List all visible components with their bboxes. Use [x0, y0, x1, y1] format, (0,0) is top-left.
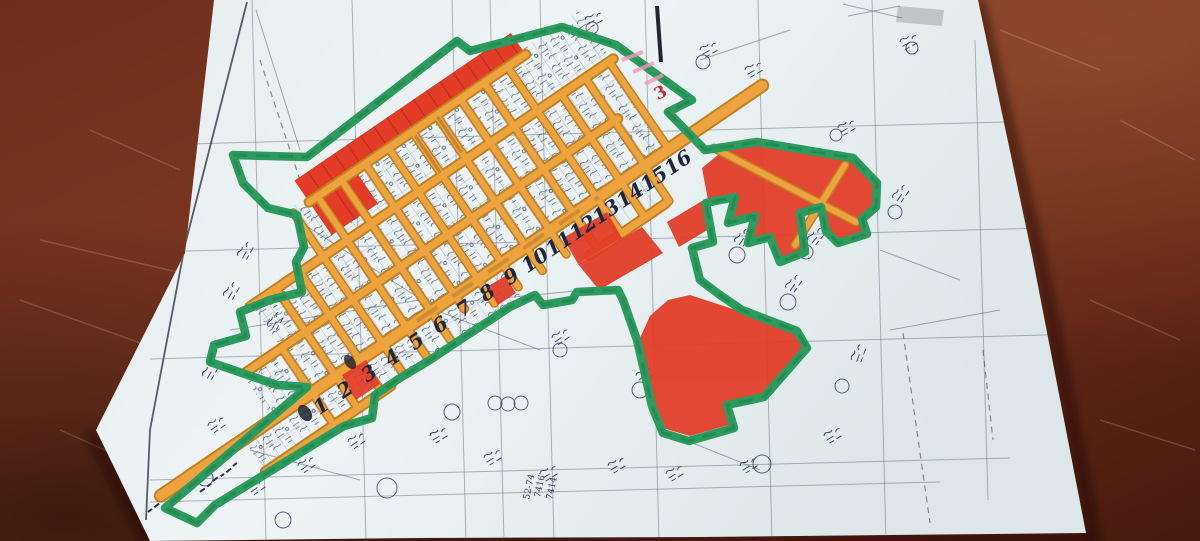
- map-photo-canvas: 7416 7414 52-74: [0, 0, 1200, 541]
- photo-of-cadastral-map: 7416 7414 52-74: [0, 0, 1200, 541]
- survey-number-labels: 7416 7414 52-74: [522, 473, 560, 501]
